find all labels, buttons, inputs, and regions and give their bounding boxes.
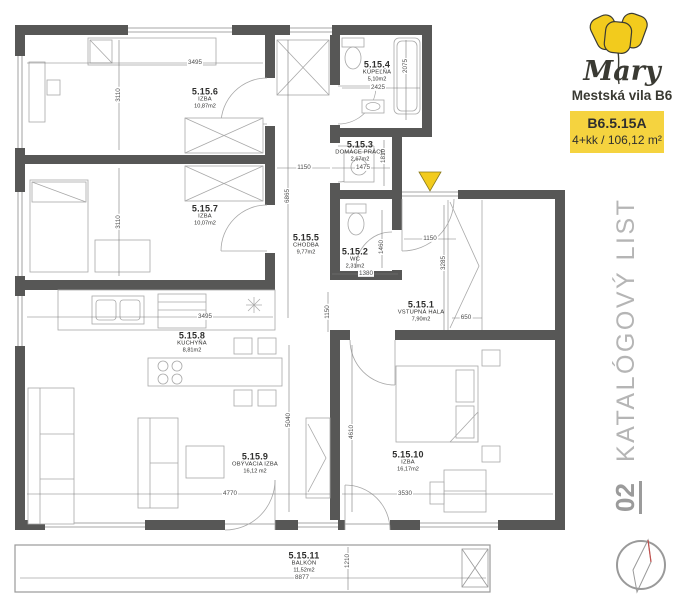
- room-area: 11,52m2: [289, 567, 320, 573]
- document-number: 02: [612, 481, 642, 514]
- dimension-label: 8877: [294, 575, 310, 581]
- dimension-label: 3495: [187, 60, 203, 66]
- room-area: 8,81m2: [177, 347, 207, 353]
- room-area: 2,31m2: [342, 263, 368, 269]
- room-name: DOMÁCE PRÁCE: [335, 150, 384, 157]
- catalogue-sheet: 5.15.1 VSTUPNÁ HALA 7,90m2 5.15.2 WC 2,3…: [0, 0, 682, 600]
- brand-subtitle: Mestská vila B6: [566, 88, 678, 103]
- dimension-label: 4610: [349, 424, 355, 440]
- toilet-icon: [346, 204, 366, 235]
- room-label-kuchyna: 5.15.8 KUCHYŇA 8,81m2: [177, 330, 207, 353]
- room-number: 5.15.2: [342, 246, 368, 256]
- room-number: 5.15.3: [335, 139, 384, 149]
- room-label-izba-7: 5.15.7 IZBA 10,07m2: [192, 203, 218, 226]
- balcony-outline: [15, 545, 490, 592]
- room-label-izba-10: 5.15.10 IZBA 16,17m2: [392, 449, 423, 472]
- room-label-izba-6: 5.15.6 IZBA 10,87m2: [192, 86, 218, 109]
- room-label-obyvacia-izba: 5.15.9 OBÝVACIA IZBA 16,12 m2: [232, 451, 278, 474]
- dimension-label: 650: [460, 315, 473, 321]
- closet-icon: [448, 200, 482, 330]
- dimension-label: 1475: [355, 165, 371, 171]
- unit-code: B6.5.15A: [570, 115, 664, 133]
- room-number: 5.15.1: [398, 299, 445, 309]
- room-name: KUCHYŇA: [177, 341, 207, 348]
- room-area: 10,07m2: [192, 220, 218, 226]
- room-label-kupelna: 5.15.4 KÚPEĽŇA 5,10m2: [363, 59, 391, 82]
- room-label-vstupna-hala: 5.15.1 VSTUPNÁ HALA 7,90m2: [398, 299, 445, 322]
- room-name: BALKÓN: [289, 561, 320, 568]
- dimension-label: 3495: [197, 314, 213, 320]
- dimension-label: 5040: [286, 412, 292, 428]
- wardrobe-icon: [185, 166, 263, 201]
- room-area: 16,17m2: [392, 466, 423, 472]
- room-number: 5.15.9: [232, 451, 278, 461]
- dimension-label: 4770: [222, 491, 238, 497]
- room-name: KÚPEĽŇA: [363, 70, 391, 77]
- desk-icon: [95, 240, 150, 272]
- dimension-label: 6865: [285, 188, 291, 204]
- room-label-balkon: 5.15.11 BALKÓN 11,52m2: [289, 550, 320, 573]
- tv-unit-icon: [306, 418, 330, 498]
- room-name: CHODBA: [293, 243, 319, 250]
- entrance-door-arc: [402, 199, 454, 251]
- wardrobe-icon: [277, 40, 329, 95]
- double-bed-icon: [396, 366, 478, 442]
- dimension-label: 1380: [358, 271, 374, 277]
- room-number: 5.15.10: [392, 449, 423, 459]
- entrance-arrow-icon: [419, 172, 441, 191]
- room-number: 5.15.5: [293, 232, 319, 242]
- room-name: OBÝVACIA IZBA: [232, 462, 278, 469]
- dimension-label: 1150: [325, 304, 331, 320]
- dimension-label: 3285: [441, 255, 447, 271]
- wardrobe-icon: [430, 470, 486, 512]
- room-name: IZBA: [192, 97, 218, 104]
- room-label-chodba: 5.15.5 CHODBA 9,77m2: [293, 232, 319, 255]
- room-number: 5.15.4: [363, 59, 391, 69]
- nightstand-icon: [482, 350, 500, 462]
- dimension-label: 2425: [370, 85, 386, 91]
- room-area: 10,87m2: [192, 103, 218, 109]
- room-area: 2,67m2: [335, 156, 384, 162]
- room-name: IZBA: [392, 460, 423, 467]
- wardrobe-icon: [185, 118, 263, 153]
- room-area: 5,10m2: [363, 76, 391, 82]
- cooktop-island-icon: [148, 358, 282, 386]
- kitchen-counter-icon: [58, 290, 275, 330]
- room-area: 16,12 m2: [232, 468, 278, 474]
- room-number: 5.15.11: [289, 550, 320, 560]
- dimension-label: 1150: [422, 236, 438, 242]
- unit-spec: 4+kk / 106,12 m²: [570, 133, 664, 148]
- bathtub-icon: [394, 38, 420, 114]
- desk-icon: [29, 62, 60, 122]
- dimension-label: 2075: [403, 58, 409, 74]
- room-number: 5.15.7: [192, 203, 218, 213]
- dimension-label: 1210: [345, 553, 351, 569]
- dimension-label: 1460: [379, 239, 385, 255]
- dimension-label: 1150: [296, 165, 312, 171]
- room-label-domace-prace: 5.15.3 DOMÁCE PRÁCE 2,67m2: [335, 139, 384, 162]
- room-number: 5.15.6: [192, 86, 218, 96]
- room-area: 9,77m2: [293, 249, 319, 255]
- room-name: IZBA: [192, 214, 218, 221]
- dimension-label: 3110: [116, 214, 122, 230]
- document-type-label: KATALÓGOVÝ LIST: [612, 198, 641, 462]
- room-name: VSTUPNÁ HALA: [398, 310, 445, 317]
- divider-panel-icon: [462, 549, 488, 587]
- coffee-table-icon: [186, 446, 224, 478]
- room-name: WC: [342, 257, 368, 264]
- lamp-icon: [246, 297, 262, 313]
- room-area: 7,90m2: [398, 316, 445, 322]
- unit-badge: B6.5.15A 4+kk / 106,12 m²: [570, 111, 664, 153]
- sink-icon: [362, 100, 384, 113]
- brand-wordmark: Mary: [572, 58, 672, 85]
- armchair-icon: [138, 418, 178, 508]
- dimension-label: 3110: [116, 87, 122, 103]
- bed-icon: [30, 180, 88, 272]
- dimension-label: 3530: [397, 491, 413, 497]
- toilet-icon: [342, 38, 364, 69]
- room-label-wc: 5.15.2 WC 2,31m2: [342, 246, 368, 269]
- sofa-icon: [28, 388, 74, 524]
- room-number: 5.15.8: [177, 330, 207, 340]
